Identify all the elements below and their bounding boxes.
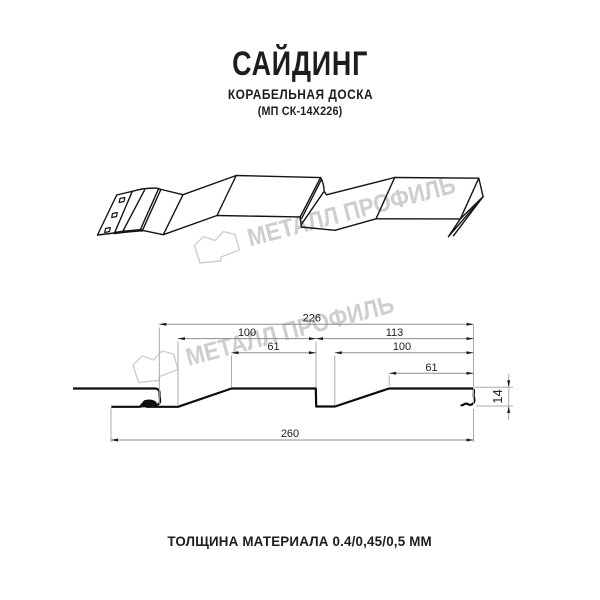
svg-text:100: 100 bbox=[238, 327, 256, 339]
svg-text:14: 14 bbox=[490, 389, 505, 403]
svg-text:61: 61 bbox=[267, 341, 279, 353]
svg-text:61: 61 bbox=[425, 362, 437, 374]
svg-text:100: 100 bbox=[393, 341, 411, 353]
svg-text:226: 226 bbox=[303, 313, 321, 325]
svg-text:113: 113 bbox=[386, 327, 404, 339]
svg-text:260: 260 bbox=[281, 428, 299, 440]
